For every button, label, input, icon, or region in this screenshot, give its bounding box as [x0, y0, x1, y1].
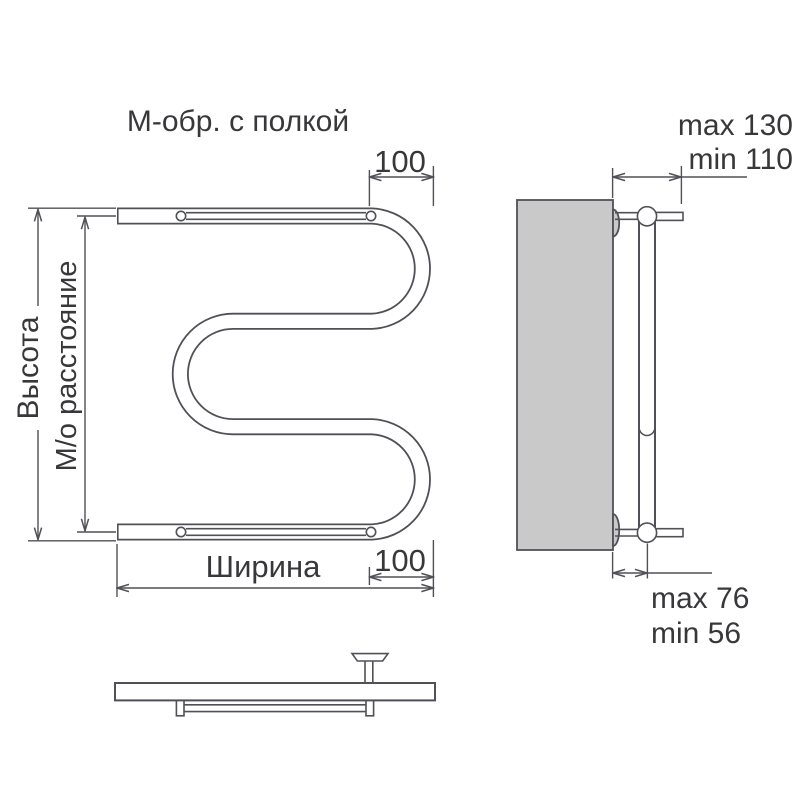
shelf-support: [176, 700, 184, 716]
bracket-rod: [655, 212, 683, 220]
fitting-boss-top: [613, 210, 619, 237]
riser-pipe-lines: [639, 217, 655, 534]
tube-plan: [115, 683, 435, 700]
center-distance-dimension-label: М/о расстояние: [51, 261, 83, 472]
shelf-support: [366, 700, 374, 716]
shelf-pin-icon: [176, 527, 185, 536]
pipe-body: [117, 216, 422, 532]
shelf-pin-icon: [176, 211, 185, 220]
top-view: [115, 654, 435, 716]
wall-distance-bottom-min-label: min 56: [651, 617, 741, 650]
technical-drawing: М-обр. с полкой Высота: [0, 0, 800, 800]
wall-bracket-bottom: [615, 523, 683, 542]
wall-bracket-top: [615, 207, 683, 226]
drawing-title: М-обр. с полкой: [127, 105, 349, 138]
bracket-rod: [655, 529, 683, 537]
top-offset-dimension: 100: [369, 144, 433, 206]
shelf-rod: [180, 705, 370, 712]
extension-lines: [613, 166, 682, 204]
wall-distance-bottom-dimension: max 76 min 56: [613, 544, 750, 651]
center-distance-dimension: М/о расстояние: [51, 216, 116, 532]
width-dimension-label: Ширина: [206, 549, 321, 584]
pipe-union-sleeve: [639, 427, 655, 436]
wall-distance-top-max-label: max 130: [678, 109, 793, 142]
front-view: Высота М/о расстояние 100 100 Шир: [12, 144, 433, 597]
ball-fitting-icon: [637, 523, 656, 542]
height-dimension-label: Высота: [12, 316, 45, 419]
radiator-panel: [517, 200, 613, 550]
pipe-outline: [117, 216, 422, 532]
side-view: max 130 min 110 max 76 min 56: [517, 109, 793, 650]
wall-distance-top-dimension: max 130 min 110: [613, 109, 793, 204]
shelf-pin-icon: [366, 211, 375, 220]
bracket-flange: [352, 654, 388, 661]
m-shaped-pipe: [117, 208, 422, 539]
bottom-offset-dimension-label: 100: [374, 543, 426, 578]
ball-fitting-icon: [637, 207, 656, 226]
bracket-stem: [365, 661, 373, 684]
shelf-pin-icon: [366, 527, 375, 536]
drawing-page: М-обр. с полкой Высота: [0, 0, 800, 800]
wall-distance-top-min-label: min 110: [688, 143, 793, 176]
top-offset-dimension-label: 100: [374, 144, 426, 179]
wall-distance-bottom-max-label: max 76: [651, 582, 749, 615]
wall-riser-pipe: [639, 217, 655, 534]
